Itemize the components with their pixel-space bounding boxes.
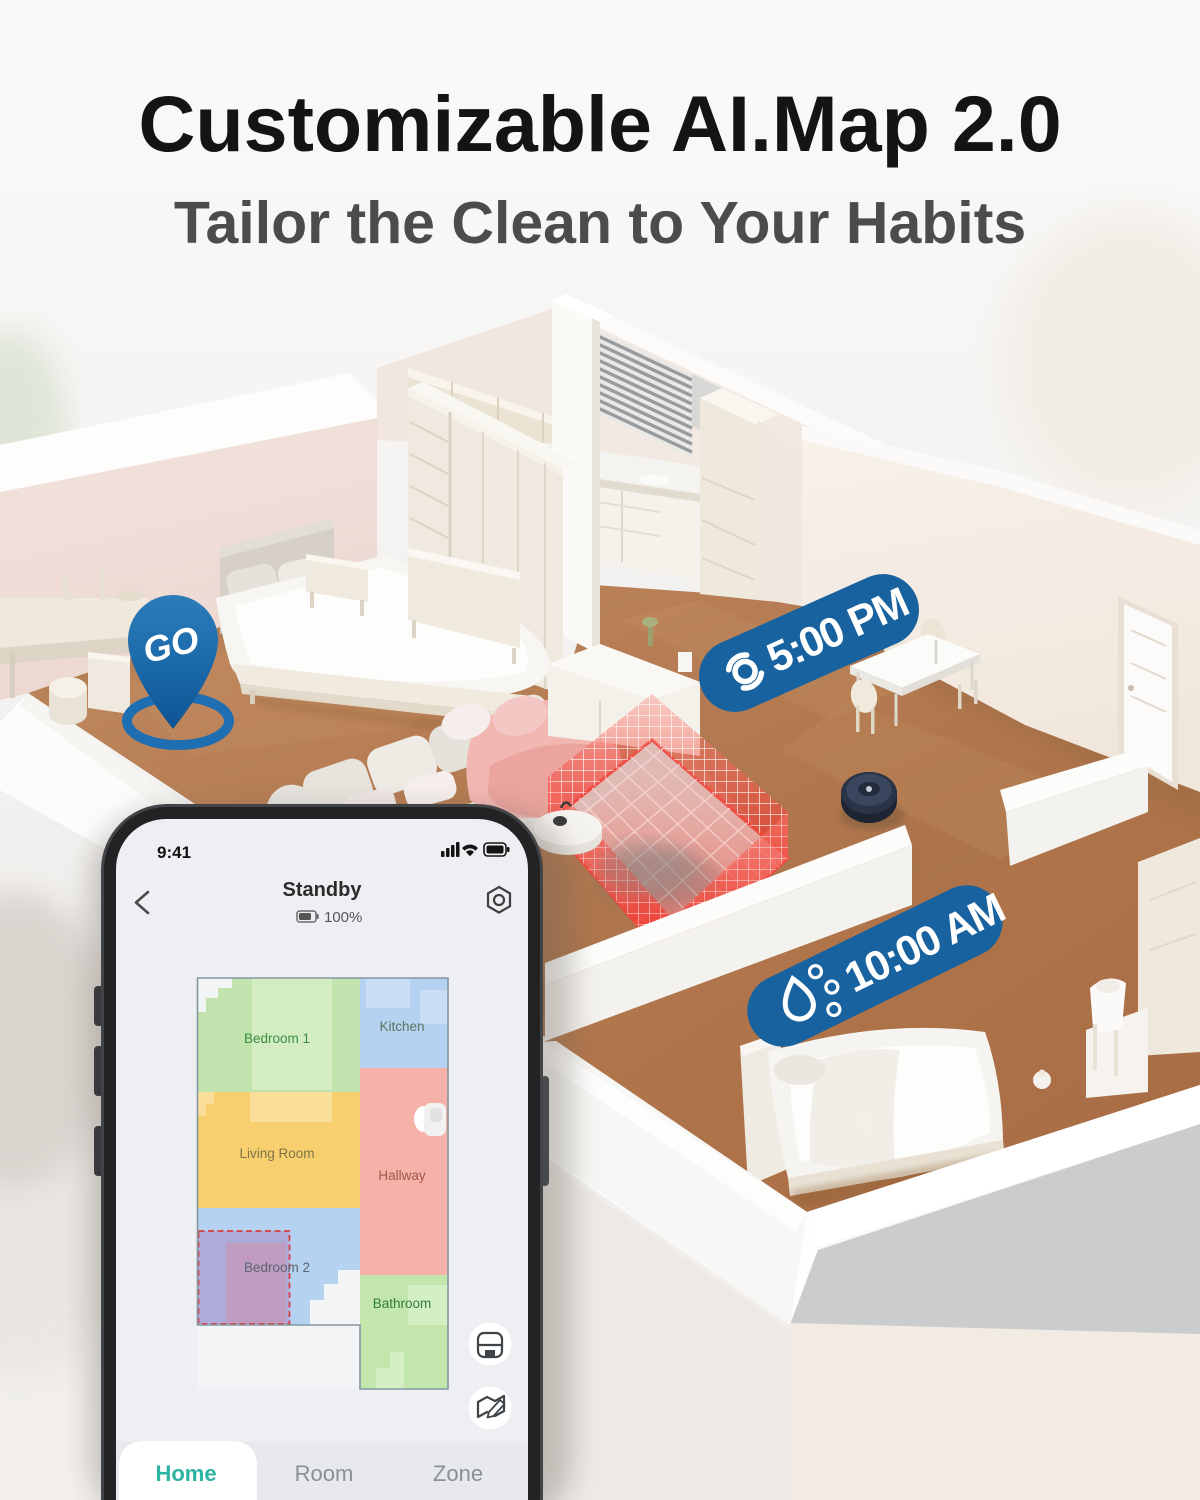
svg-text:Home: Home: [155, 1461, 216, 1486]
svg-text:Living Room: Living Room: [239, 1146, 314, 1161]
svg-text:100%: 100%: [324, 909, 362, 926]
svg-text:Bedroom 1: Bedroom 1: [244, 1031, 310, 1046]
svg-text:Standby: Standby: [283, 879, 363, 901]
svg-text:Room: Room: [295, 1461, 354, 1486]
svg-text:Hallway: Hallway: [378, 1168, 426, 1183]
svg-text:Bedroom 2: Bedroom 2: [244, 1260, 310, 1275]
svg-text:Bathroom: Bathroom: [373, 1296, 432, 1311]
svg-text:Kitchen: Kitchen: [379, 1019, 424, 1034]
svg-text:Zone: Zone: [433, 1461, 483, 1486]
svg-text:9:41: 9:41: [157, 843, 191, 862]
